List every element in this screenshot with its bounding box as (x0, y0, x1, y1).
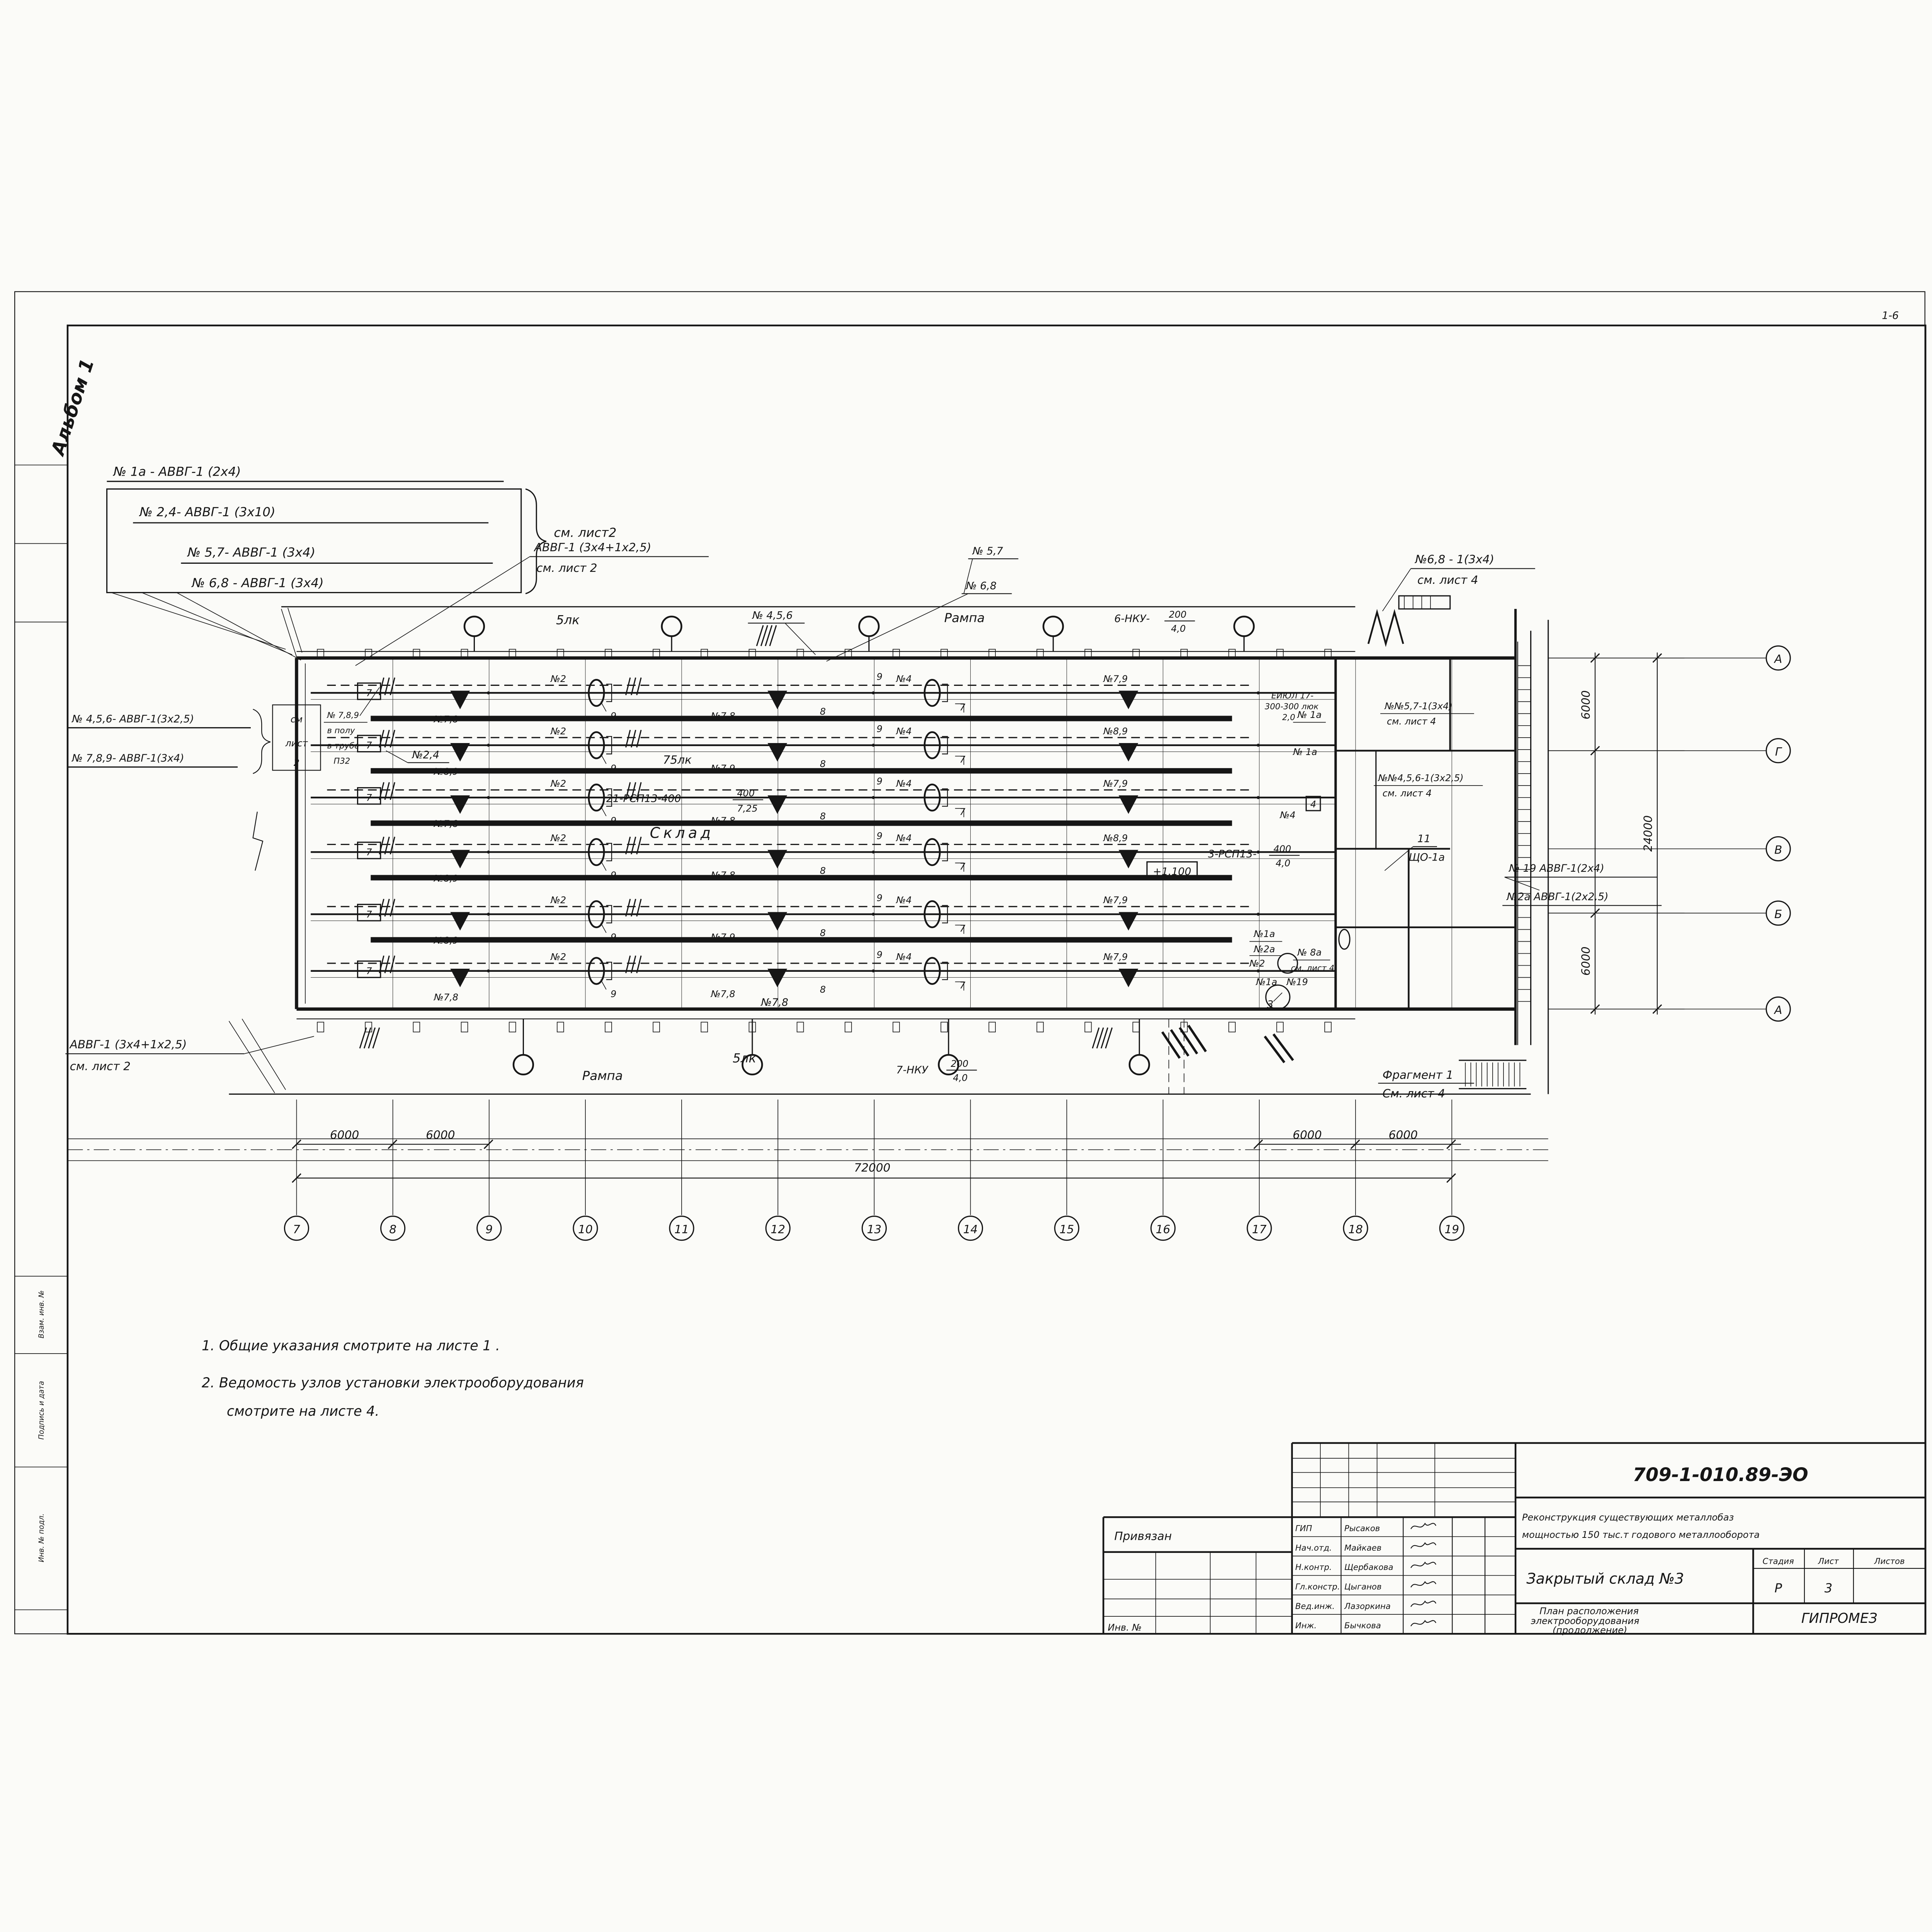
axis-number: 7 (293, 1223, 300, 1236)
storage-rack (371, 820, 1232, 826)
group-digit-7: 7 (959, 861, 966, 872)
shield-label: ЩО-1а (1409, 852, 1445, 864)
storage-rack (371, 875, 1232, 880)
label-n8a: № 8а (1297, 947, 1322, 958)
cable-l1: № 1а - АВВГ-1 (2х4) (112, 464, 241, 479)
group-digit-9: 9 (877, 671, 883, 682)
annex-callout-456: №№4,5,6-1(3х2,5) (1378, 773, 1464, 784)
rsp-lamp-triangle (767, 850, 787, 868)
cable-l4: № 6,8 - АВВГ-1 (3х4) (191, 575, 324, 590)
rsp-lamp-triangle (450, 850, 470, 868)
group-digit-7: 7 (959, 754, 966, 765)
person-role: ГИП (1295, 1524, 1312, 1533)
axis-number: 11 (674, 1223, 689, 1236)
lamp-label: №4 (895, 673, 912, 684)
column-tick (605, 1022, 612, 1032)
lamp-label: №4 (895, 951, 912, 962)
annex-callout-57: №№5,7-1(3х4) (1384, 701, 1452, 711)
ramp-lamp (514, 1055, 533, 1075)
annex-callout-57-see: см. лист 4 (1387, 716, 1436, 727)
dim-6000-4: 6000 (1389, 1128, 1418, 1141)
top-nku-den: 4,0 (1171, 623, 1185, 634)
callout-68: № 6,8 (965, 580, 997, 592)
dim-r-6000b: 6000 (1579, 947, 1592, 976)
rsp-lamp-triangle (1119, 743, 1138, 762)
rsp-lamp-triangle (767, 743, 787, 762)
annex-callout-456-see: см. лист 4 (1383, 788, 1432, 799)
cable-l2: № 2,4- АВВГ-1 (3х10) (139, 505, 276, 519)
person-name: Щербакова (1344, 1562, 1393, 1572)
dim-6000-2: 6000 (426, 1128, 455, 1141)
bottom-nku-den: 4,0 (953, 1073, 968, 1083)
ramp-lamp (1234, 617, 1254, 636)
lamp-label: №2 (550, 726, 566, 736)
axis-number: 15 (1060, 1223, 1074, 1236)
group-digit-7: 7 (959, 980, 966, 991)
bottom-nku-label: 7-НКУ (896, 1064, 929, 1076)
person-role: Инж. (1295, 1621, 1316, 1630)
dim-6000-3: 6000 (1293, 1128, 1322, 1141)
tr-cable: №6,8 - 1(3х4) (1415, 553, 1495, 566)
person-role: Н.контр. (1295, 1562, 1332, 1572)
ramp-lamp (662, 617, 682, 636)
label-n1a-2: № 1а (1293, 747, 1317, 757)
warehouse-plan: 7№7,8№7,8№7,9№2№499877№8,9№7,9№8,9№2№499… (68, 545, 1662, 1215)
fragment-see: См. лист 4 (1383, 1087, 1445, 1100)
top-nku-num: 200 (1169, 609, 1187, 620)
cable-exit-hatch (1162, 1026, 1293, 1063)
axis-number: 19 (1444, 1223, 1459, 1236)
top-rampa-label: Рампа (944, 611, 985, 625)
sheet-label: Лист (1818, 1556, 1839, 1566)
lamp-group-label: №8,9 (1103, 833, 1128, 844)
group-digit-9: 9 (877, 893, 883, 903)
panel-number: 7 (366, 740, 372, 751)
panel-number: 7 (366, 688, 372, 699)
rsp-lamp-triangle (767, 969, 787, 987)
callout-top-mid: АВВГ-1 (3х4+1х2,5) см. лист 2 (355, 541, 709, 665)
lamp-group-label: №7,9 (1103, 778, 1128, 789)
rsp21-num: 400 (737, 788, 755, 799)
group-digit-7: 7 (959, 806, 966, 817)
storage-rack (371, 716, 1232, 721)
rsp-lamp-triangle (1119, 691, 1138, 709)
column-tick (461, 1022, 468, 1032)
axis-number: 13 (867, 1223, 882, 1236)
left-note-1: № 7,8,9 (327, 710, 359, 720)
label-n1a-4: №1а (1255, 976, 1277, 987)
rsp-lamp-triangle (450, 743, 470, 762)
signature (1411, 1582, 1436, 1587)
column-tick (557, 1022, 564, 1032)
left-margin-stamps: Взам. инв. № Подпись и дата Инв. № подл. (15, 465, 68, 1610)
organization: ГИПРОМЕЗ (1801, 1611, 1878, 1626)
lamp-group-label: №7,8 (433, 992, 458, 1003)
callout-2-4: №2,4 (412, 749, 440, 761)
label-n4: №4 (1279, 810, 1296, 821)
group-digit-8: 8 (820, 811, 826, 821)
binding-label: Привязан (1114, 1530, 1172, 1543)
signature (1411, 1523, 1436, 1529)
left-note-3: в трубе (327, 741, 360, 750)
column-tick (1229, 1022, 1235, 1032)
stamp-podpis: Подпись и дата (37, 1381, 46, 1440)
tap-dot (487, 913, 490, 916)
project-line1: Реконструкция существующих металлобаз (1522, 1512, 1734, 1523)
tap-dot (872, 969, 875, 973)
label-n1a-3: №1а (1253, 929, 1275, 939)
axis-number: 8 (389, 1223, 396, 1236)
tap-dot (1257, 744, 1260, 747)
lamp-label: №4 (895, 833, 912, 844)
sheet-value: 3 (1825, 1581, 1833, 1595)
sheet-title-1: План расположения (1539, 1605, 1639, 1616)
general-notes: 1. Общие указания смотрите на листе 1 . … (202, 1338, 584, 1419)
label-n2: №2 (1249, 958, 1265, 969)
rsp-lamp-triangle (1119, 969, 1138, 987)
album-label: Альбом 1 (47, 356, 99, 459)
panel-number: 7 (366, 793, 372, 803)
drawing-sheet: Взам. инв. № Подпись и дата Инв. № подл.… (0, 0, 1932, 1932)
column-tick (1277, 1022, 1283, 1032)
tap-dot (872, 691, 875, 694)
inv-label: Инв. № (1108, 1622, 1142, 1633)
axis-letter: Б (1774, 908, 1782, 921)
bottom-rampa-label: Рампа (582, 1068, 623, 1083)
axis-number: 16 (1156, 1223, 1170, 1236)
column-tick (701, 1022, 707, 1032)
lamp-group-label: №7,9 (1103, 951, 1128, 962)
tap-dot (1257, 850, 1260, 854)
group-digit-9: 9 (877, 949, 883, 960)
label-n19: №19 (1286, 976, 1308, 987)
right-cable-labels: № 19 АВВГ-1(2х4) №2а АВВГ-1(2х2,5) (1502, 862, 1662, 905)
ramp-lamp (1129, 1055, 1149, 1075)
stage-label: Стадия (1763, 1556, 1794, 1566)
ramp-lamp (1043, 617, 1063, 636)
lamp-label: №4 (895, 895, 912, 906)
person-name: Цыганов (1344, 1582, 1381, 1591)
lamp-group-label: №7,9 (1103, 895, 1128, 906)
left-see-1: см (291, 714, 303, 724)
axis-letter: Г (1775, 745, 1782, 758)
storage-rack (371, 768, 1232, 774)
group-digit-8: 8 (820, 927, 826, 938)
group-digit-9: 9 (611, 988, 616, 999)
axis-letter: А (1774, 1003, 1782, 1017)
label-3: 3 (1267, 999, 1274, 1011)
left-cable-l1: № 4,5,6- АВВГ-1(3х2,5) (71, 713, 194, 725)
tap-dot (1257, 796, 1260, 799)
lamp-label: №2 (550, 833, 566, 844)
column-tick (941, 1022, 947, 1032)
signature (1411, 1621, 1436, 1626)
object-name: Закрытый склад №3 (1526, 1570, 1684, 1587)
fragment-label: Фрагмент 1 (1383, 1068, 1453, 1082)
group-digit-8: 8 (820, 759, 826, 769)
tr-see: см. лист 4 (1417, 573, 1478, 587)
note-1: 1. Общие указания смотрите на листе 1 . (202, 1338, 500, 1354)
column-tick (365, 1022, 372, 1032)
left-see-3: 2 (294, 757, 299, 768)
bl-cable: АВВГ-1 (3х4+1х2,5) (69, 1038, 187, 1051)
tap-dot (487, 796, 490, 799)
stamp-inv: Инв. № подл. (37, 1514, 46, 1562)
lamp-label: №4 (895, 778, 912, 789)
lamp-group-label: №7,8 (710, 988, 735, 999)
lamp-group-label: №7,9 (1103, 673, 1128, 684)
column-tick (509, 1022, 516, 1032)
column-tick (1325, 1022, 1331, 1032)
shield-num: 11 (1417, 833, 1430, 845)
sheets-label: Листов (1874, 1556, 1905, 1566)
group-digit-8: 8 (820, 706, 826, 717)
rsp-lamp-triangle (767, 912, 787, 930)
tap-dot (872, 913, 875, 916)
callout-mid-see: см. лист 2 (536, 561, 597, 575)
stamp-vzam: Взам. инв. № (37, 1290, 46, 1338)
sheet-title-3: (продолжение) (1553, 1625, 1627, 1636)
column-tick (653, 1022, 660, 1032)
group-digit-8: 8 (820, 866, 826, 876)
corner-mark: 1-6 (1882, 310, 1899, 321)
note-3: смотрите на листе 4. (227, 1403, 379, 1419)
group-digit-9: 9 (877, 776, 883, 787)
person-name: Рысаков (1344, 1524, 1380, 1533)
sklad-label: Склад (650, 824, 714, 841)
group-digit-9: 9 (877, 724, 883, 735)
callout-mid-cable: АВВГ-1 (3х4+1х2,5) (534, 541, 651, 554)
panel-number: 7 (366, 909, 372, 920)
dimensions: 78910111213141516171819АГВБА 6000 6000 6… (284, 646, 1790, 1240)
column-tick (845, 1022, 852, 1032)
cable-19-label: № 19 АВВГ-1(2х4) (1508, 862, 1604, 874)
axis-number: 9 (485, 1223, 493, 1236)
axis-number: 10 (578, 1223, 593, 1236)
ramp-lamp (859, 617, 879, 636)
bottom-lk-label: 5лк (733, 1051, 756, 1066)
group-digit-7: 7 (959, 702, 966, 713)
lamp-label: №2 (550, 778, 566, 789)
dim-6000-1: 6000 (330, 1128, 359, 1141)
left-note-4: П32 (333, 756, 350, 766)
bottom-group-label: №7,8 (760, 997, 788, 1009)
lamp-label: №4 (895, 726, 912, 736)
column-tick (1085, 1022, 1092, 1032)
axis-number: 12 (770, 1223, 785, 1236)
tap-dot (1257, 691, 1260, 694)
column-tick (413, 1022, 420, 1032)
rsp-lamp-triangle (450, 691, 470, 709)
luminaire-type-3: 2,0 (1282, 713, 1295, 722)
label-n1a-1: № 1а (1297, 709, 1322, 720)
panel-number: 7 (366, 966, 372, 976)
label-4-box: 4 (1310, 799, 1316, 810)
lamp-label: №2 (550, 673, 566, 684)
rsp-lamp-triangle (1119, 850, 1138, 868)
group-digit-8: 8 (820, 984, 826, 995)
luminaire-type-1: ЕИЮЛ 17- (1271, 690, 1313, 700)
column-tick (989, 1022, 995, 1032)
column-tick (893, 1022, 900, 1032)
tap-dot (487, 691, 490, 694)
rsp-lamp-triangle (450, 912, 470, 930)
cable-list-left: № 4,5,6- АВВГ-1(3х2,5) № 7,8,9- АВВГ-1(3… (68, 687, 379, 774)
doc-number: 709-1-010.89-ЭО (1633, 1464, 1808, 1486)
left-cable-l2: № 7,8,9- АВВГ-1(3х4) (71, 752, 184, 764)
callout-57: № 5,7 (972, 545, 1003, 557)
person-role: Гл.констр. (1295, 1582, 1340, 1591)
top-lk-label: 5лк (556, 612, 580, 627)
bl-see: см. лист 2 (70, 1060, 131, 1073)
group-digit-9: 9 (877, 830, 883, 841)
top-ramp-band: 5лк № 4,5,6 Рампа 6-НКУ- 200 4,0 № 5,7 №… (556, 545, 1195, 662)
signature (1411, 1543, 1436, 1549)
person-name: Лазоркина (1344, 1601, 1391, 1611)
tap-dot (872, 796, 875, 799)
signature (1411, 1601, 1436, 1607)
column-tick (1037, 1022, 1043, 1032)
axis-letter: В (1774, 843, 1782, 856)
column-tick (1133, 1022, 1139, 1032)
rsp-lamp-triangle (1119, 912, 1138, 930)
rsp-lamp-triangle (1119, 795, 1138, 814)
bottom-nku-num: 200 (951, 1058, 968, 1069)
tap-dot (1257, 913, 1260, 916)
axis-number: 17 (1252, 1223, 1267, 1236)
lk75-label: 75лк (663, 753, 692, 767)
column-tick (317, 1022, 324, 1032)
person-name: Майкаев (1344, 1543, 1381, 1553)
rsp3-label: 3-РСП13- (1208, 848, 1257, 860)
callout-bottom-left: АВВГ-1 (3х4+1х2,5) см. лист 2 (65, 1036, 314, 1073)
top-nku-label: 6-НКУ- (1114, 613, 1150, 625)
column-tick (797, 1022, 804, 1032)
lamp-group-label: №8,9 (1103, 726, 1128, 736)
rsp21-label: 21-РСП13-400 (606, 793, 681, 804)
axis-letter: А (1774, 653, 1782, 666)
storage-rack (371, 937, 1232, 942)
cable-list-see: см. лист2 (554, 526, 616, 540)
left-note-2: в полу (327, 726, 355, 735)
person-name: Бычкова (1344, 1621, 1381, 1630)
dim-r-6000a: 6000 (1579, 690, 1592, 719)
person-role: Вед.инж. (1295, 1601, 1335, 1611)
rsp-lamp-triangle (450, 795, 470, 814)
lamp-label: №2 (550, 951, 566, 962)
dim-r-24000: 24000 (1641, 815, 1655, 852)
tap-dot (1257, 969, 1260, 973)
rsp3-num: 400 (1274, 844, 1291, 854)
axis-number: 14 (963, 1223, 978, 1236)
group-digit-7: 7 (959, 923, 966, 934)
rsp3-den: 4,0 (1276, 858, 1290, 869)
stage-value: Р (1774, 1581, 1782, 1595)
panel-number: 7 (366, 847, 372, 858)
building-outline (68, 607, 1548, 1160)
rsp-lamp-triangle (767, 691, 787, 709)
dim-72000: 72000 (854, 1161, 890, 1174)
note-2: 2. Ведомость узлов установки электрообор… (202, 1375, 584, 1391)
cable-l3: № 5,7- АВВГ-1 (3х4) (187, 545, 315, 560)
tap-dot (872, 850, 875, 854)
top-group-label: № 4,5,6 (752, 609, 793, 621)
tap-dot (487, 744, 490, 747)
project-line2: мощностью 150 тыс.т годового металлообор… (1522, 1529, 1760, 1540)
cable-2a-label: №2а АВВГ-1(2х2,5) (1506, 891, 1609, 903)
rsp21-den: 7,25 (737, 803, 757, 814)
axis-number: 18 (1348, 1223, 1363, 1236)
signature (1411, 1562, 1436, 1568)
left-see-2: лист (285, 738, 308, 748)
tap-dot (487, 969, 490, 973)
label-n8a-see: см. лист 4 (1291, 963, 1334, 973)
rsp-lamp-triangle (450, 969, 470, 987)
elevation-mark: +1.100 (1153, 866, 1191, 878)
tap-dot (487, 850, 490, 854)
tap-dot (872, 744, 875, 747)
rsp-lamp-triangle (767, 795, 787, 814)
fragment-callout: Фрагмент 1 См. лист 4 (1378, 1068, 1474, 1100)
label-n2a: №2а (1253, 944, 1275, 955)
ramp-lamp (464, 617, 484, 636)
lamp-label: №2 (550, 895, 566, 906)
person-role: Нач.отд. (1295, 1543, 1332, 1553)
callout-top-right: №6,8 - 1(3х4) см. лист 4 (1383, 553, 1535, 611)
title-block: ГИПРысаковНач.отд.МайкаевН.контр.Щербако… (1104, 1443, 1926, 1635)
